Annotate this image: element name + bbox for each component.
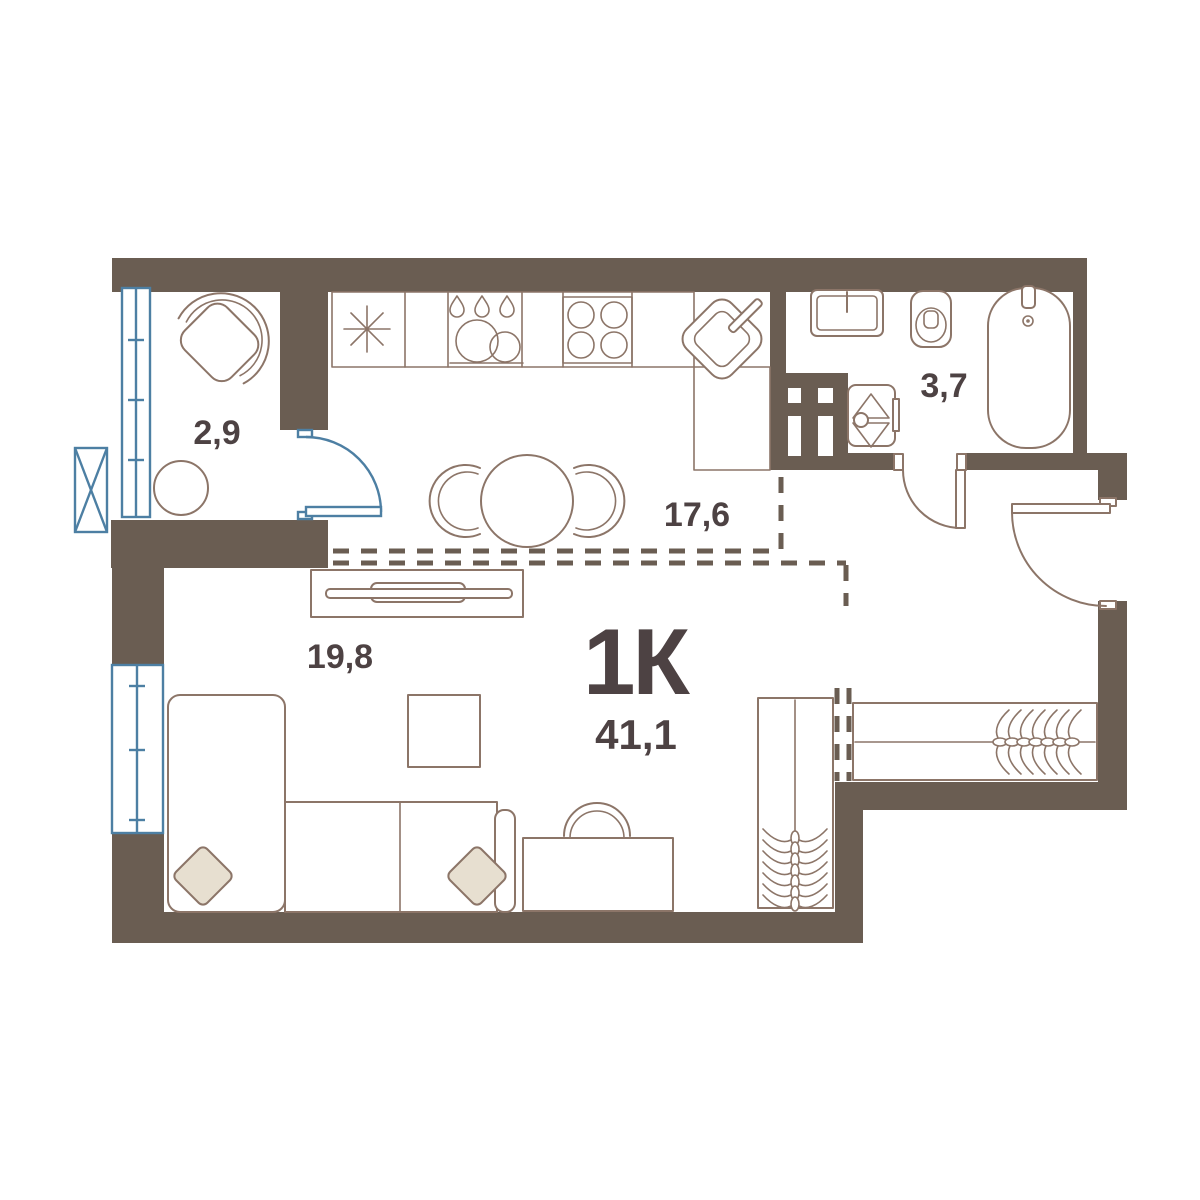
stove-icon bbox=[563, 297, 632, 363]
dining-set bbox=[430, 455, 625, 547]
balcony-glazing bbox=[122, 288, 150, 517]
balcony-area-label: 2,9 bbox=[193, 414, 240, 452]
desk bbox=[523, 838, 673, 911]
tv bbox=[326, 589, 512, 598]
kitchen-counter-side bbox=[694, 367, 770, 470]
desk-chair bbox=[564, 803, 630, 838]
balcony-furniture bbox=[154, 273, 289, 515]
entrance-door bbox=[1012, 498, 1116, 609]
dining-chair-right bbox=[574, 465, 624, 537]
washing-machine bbox=[848, 385, 899, 447]
dish-rack-icon bbox=[450, 296, 523, 363]
kitchen-area-label: 17,6 bbox=[664, 496, 730, 534]
corner-sink-icon bbox=[677, 278, 783, 384]
wardrobe-vertical bbox=[758, 698, 833, 911]
floor-plan-canvas: 2,9 17,6 19,8 3,7 1К 41,1 bbox=[0, 0, 1200, 1200]
bathroom-area-label: 3,7 bbox=[920, 367, 967, 405]
side-table bbox=[154, 461, 208, 515]
wardrobe-hallway bbox=[853, 703, 1097, 780]
bathroom-sink bbox=[811, 290, 883, 336]
dining-table bbox=[481, 455, 573, 547]
coffee-table bbox=[408, 695, 480, 767]
toilet bbox=[911, 291, 951, 347]
fridge-icon bbox=[344, 306, 390, 352]
dining-chair-left bbox=[430, 465, 480, 537]
balcony-door bbox=[298, 430, 381, 519]
apartment-type-label: 1К bbox=[583, 609, 690, 714]
living-area-label: 19,8 bbox=[307, 638, 373, 676]
living-room-window bbox=[112, 665, 163, 833]
exterior-basket bbox=[75, 448, 107, 532]
bathtub bbox=[988, 286, 1070, 448]
total-area-label: 41,1 bbox=[595, 711, 677, 758]
tv-stand bbox=[311, 570, 523, 617]
floor-plan: 2,9 17,6 19,8 3,7 1К 41,1 bbox=[0, 0, 1200, 1200]
kitchen bbox=[332, 278, 783, 470]
